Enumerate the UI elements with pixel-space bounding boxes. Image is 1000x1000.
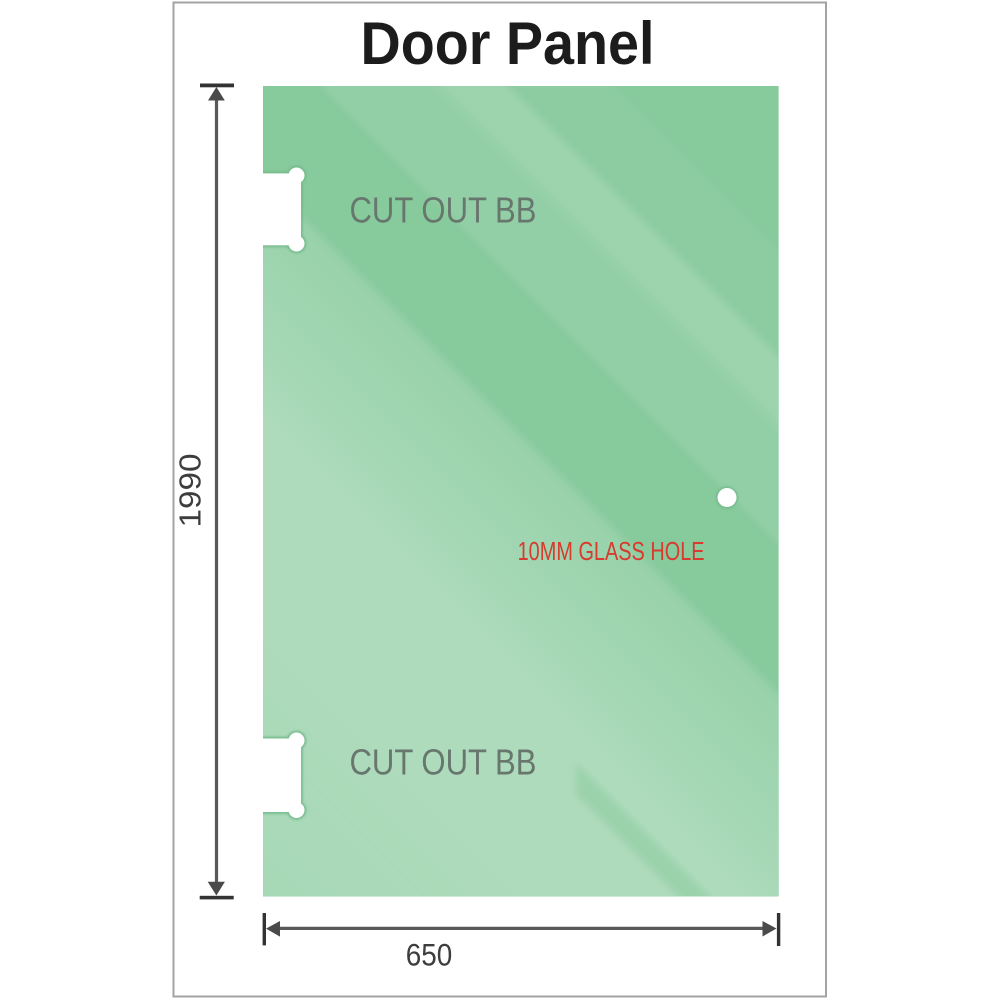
svg-text:650: 650 <box>406 937 453 973</box>
svg-text:10MM GLASS HOLE: 10MM GLASS HOLE <box>518 536 705 566</box>
svg-text:CUT OUT BB: CUT OUT BB <box>350 742 537 783</box>
svg-text:1990: 1990 <box>173 454 208 528</box>
svg-text:CUT OUT BB: CUT OUT BB <box>350 190 537 231</box>
svg-text:Door Panel: Door Panel <box>361 10 655 77</box>
